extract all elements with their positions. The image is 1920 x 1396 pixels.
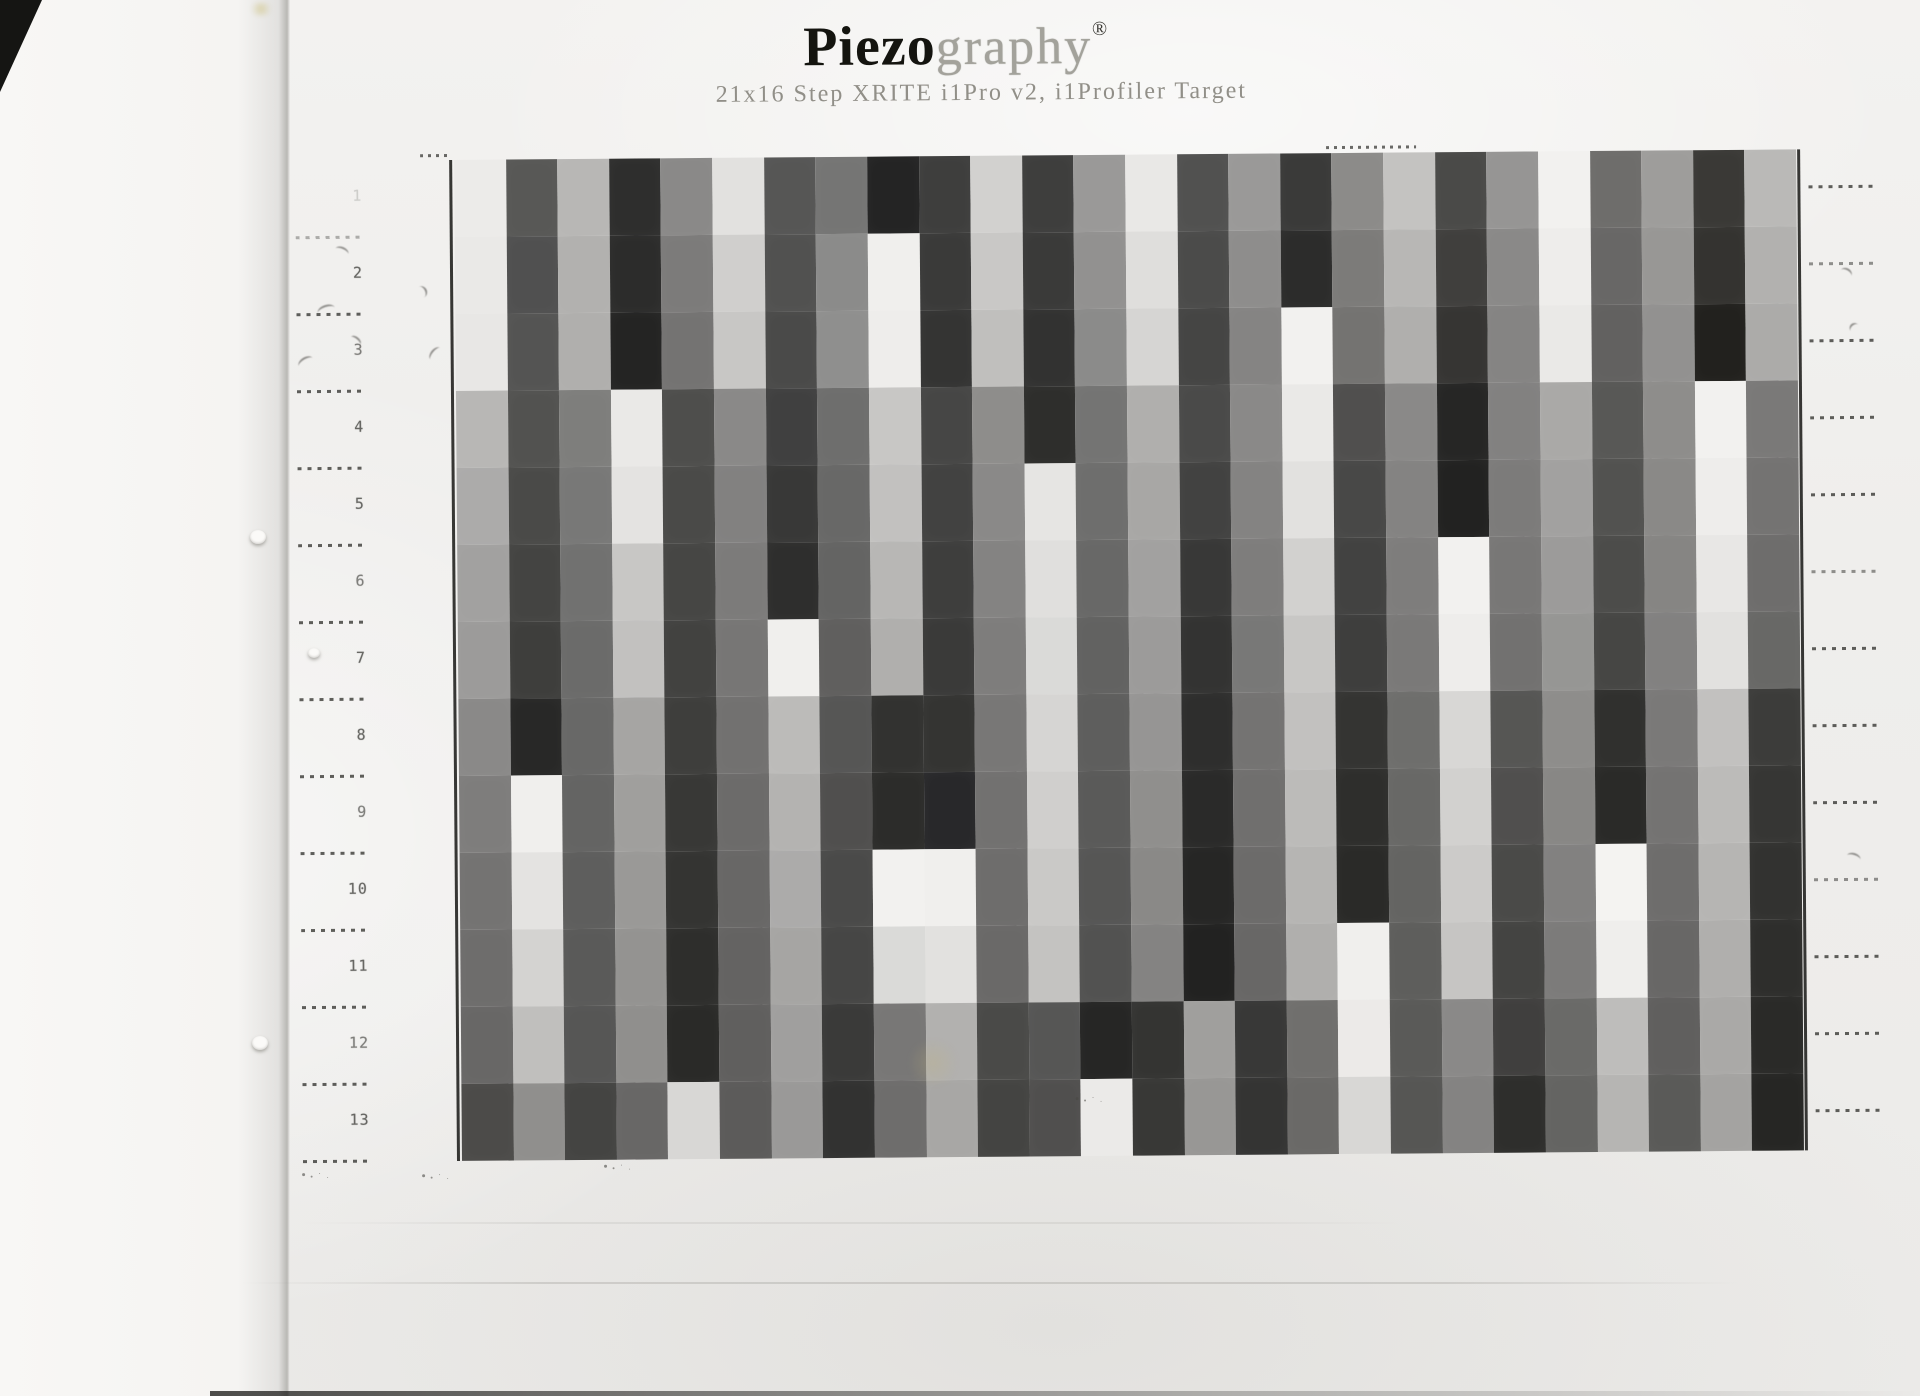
pencil-mark (1838, 266, 1853, 281)
patch (1645, 689, 1697, 766)
patch (1695, 458, 1747, 535)
patch (1285, 769, 1337, 846)
patch (506, 236, 558, 313)
patch (1075, 309, 1127, 386)
patch (508, 390, 560, 467)
ruler-dash-right (1809, 262, 1875, 266)
patch (1492, 921, 1544, 998)
patch (767, 542, 819, 619)
patch (511, 852, 563, 929)
patch (511, 775, 563, 852)
patch (1545, 998, 1597, 1075)
patch (718, 928, 770, 1005)
patch (1744, 149, 1796, 226)
patch (1438, 537, 1490, 614)
pencil-speck (422, 1174, 425, 1177)
patch (1078, 771, 1130, 848)
patch (1590, 228, 1642, 305)
ruler-dash-left (302, 1006, 370, 1010)
patch (1539, 305, 1591, 382)
patch (1280, 153, 1332, 230)
patch (1281, 307, 1333, 384)
patch (1489, 459, 1541, 536)
patch (870, 541, 922, 618)
patch (458, 699, 510, 776)
patch (1390, 999, 1442, 1076)
patch (1332, 230, 1384, 307)
patch (558, 236, 610, 313)
patch (871, 695, 923, 772)
patch (1438, 614, 1490, 691)
patch (821, 927, 873, 1004)
ruler-dash-right (1813, 724, 1879, 728)
patch (1648, 997, 1700, 1074)
patch (922, 618, 974, 695)
paper-crease (300, 1222, 1400, 1224)
patch (921, 464, 973, 541)
patch (719, 1004, 771, 1081)
pencil-mark (427, 345, 443, 362)
patch (1076, 463, 1128, 540)
patch (1542, 690, 1594, 767)
patch (1128, 539, 1180, 616)
patch (664, 543, 716, 620)
patch (868, 233, 920, 310)
patch (771, 1081, 823, 1158)
patch (1591, 382, 1643, 459)
row-label: 5 (331, 495, 365, 513)
ruler-dash-right (1815, 1032, 1881, 1036)
patch (873, 926, 925, 1003)
patch (460, 930, 512, 1007)
patch (869, 387, 921, 464)
patch (662, 312, 714, 389)
patch (1494, 1075, 1546, 1152)
patch (559, 313, 611, 390)
patch (663, 466, 715, 543)
patch (509, 621, 561, 698)
patch (1487, 228, 1539, 305)
scanned-page: Piezography® 21x16 Step XRITE i1Pro v2, … (0, 0, 1920, 1396)
patch (1539, 228, 1591, 305)
patch (1693, 150, 1745, 227)
patch (1029, 1079, 1081, 1156)
patch (1075, 386, 1127, 463)
patch (506, 159, 558, 236)
patch (1073, 155, 1125, 232)
patch (1338, 1000, 1390, 1077)
patch (872, 849, 924, 926)
patch (1389, 845, 1441, 922)
patch (1074, 232, 1126, 309)
patch (1029, 1002, 1081, 1079)
patch (1695, 381, 1747, 458)
patch (1022, 232, 1074, 309)
patch (1233, 692, 1285, 769)
patch (562, 775, 614, 852)
patch (1287, 1077, 1339, 1154)
patch (1130, 770, 1182, 847)
patch (1492, 844, 1544, 921)
ruler-dash-left (298, 467, 366, 471)
row-label: 7 (332, 649, 366, 667)
patch (460, 853, 512, 930)
row-label: 11 (334, 957, 368, 975)
patch (817, 311, 869, 388)
patch (1486, 151, 1538, 228)
scan-stain (905, 1040, 961, 1086)
patch (1287, 1000, 1339, 1077)
patch (454, 160, 506, 237)
pencil-mark (316, 302, 337, 318)
patch (1126, 231, 1178, 308)
patch (1332, 153, 1384, 230)
ruler-dash-right (1811, 570, 1877, 574)
patch (1748, 611, 1800, 688)
page-title: Piezography® (715, 12, 1195, 80)
patch (1387, 691, 1439, 768)
patch (1747, 534, 1799, 611)
patch (1751, 919, 1803, 996)
scan-bottom-edge (210, 1391, 1920, 1396)
patch (715, 543, 767, 620)
ruler-dash-right (1814, 878, 1880, 882)
patch (1126, 308, 1178, 385)
patch (821, 850, 873, 927)
patch (1335, 538, 1387, 615)
patch (1440, 845, 1492, 922)
patch (1697, 689, 1749, 766)
patch (871, 618, 923, 695)
patch (563, 852, 615, 929)
ruler-dash-left (301, 929, 369, 933)
row-label: 9 (333, 803, 367, 821)
patch (611, 389, 663, 466)
patch (1700, 997, 1752, 1074)
patch (1384, 229, 1436, 306)
ruler-dash-right (1814, 955, 1880, 959)
patch (1179, 462, 1231, 539)
target-header: Piezography® 21x16 Step XRITE i1Pro v2, … (715, 12, 1196, 109)
patch (923, 695, 975, 772)
pencil-mark (413, 284, 429, 300)
patch (1231, 538, 1283, 615)
patch (611, 466, 663, 543)
patch (820, 696, 872, 773)
patch (560, 544, 612, 621)
patch (717, 774, 769, 851)
ruler-dash-right (1813, 801, 1879, 805)
patch (1543, 767, 1595, 844)
patch (563, 929, 615, 1006)
patch (507, 313, 559, 390)
ruler-dash-right (1811, 493, 1877, 497)
patch (1080, 1002, 1132, 1079)
patch (455, 237, 507, 314)
ruler-dash-right (1810, 339, 1876, 343)
patch (868, 310, 920, 387)
patch (1282, 461, 1334, 538)
patch (1442, 1076, 1494, 1153)
patch (818, 542, 870, 619)
patch (1752, 1073, 1804, 1150)
patch (512, 1006, 564, 1083)
target-subtitle: 21x16 Step XRITE i1Pro v2, i1Profiler Ta… (716, 78, 1196, 109)
patch (1024, 463, 1076, 540)
patch (769, 850, 821, 927)
patch (1386, 460, 1438, 537)
patch (1285, 846, 1337, 923)
patch (971, 232, 1023, 309)
patch (1182, 847, 1234, 924)
patch (1177, 154, 1229, 231)
patch (1540, 459, 1592, 536)
pencil-mark (1846, 851, 1862, 864)
ruler-dash-left (296, 236, 364, 240)
patch (610, 235, 662, 312)
patch (557, 159, 609, 236)
patch (1694, 304, 1746, 381)
patch (1594, 690, 1646, 767)
row-label: 6 (331, 572, 365, 590)
patch (1644, 458, 1696, 535)
patch (1385, 383, 1437, 460)
patch (614, 774, 666, 851)
patch (1747, 457, 1799, 534)
patch (1699, 920, 1751, 997)
patch (1693, 227, 1745, 304)
patch (455, 314, 507, 391)
patch (976, 925, 1028, 1002)
patch (1435, 152, 1487, 229)
patch (1592, 459, 1644, 536)
patch (457, 545, 509, 622)
patch (1647, 843, 1699, 920)
patch (1338, 923, 1390, 1000)
patch (1077, 540, 1129, 617)
patch (971, 309, 1023, 386)
patch (1595, 844, 1647, 921)
registration-dash (420, 154, 450, 157)
patch (764, 157, 816, 234)
patch (1180, 539, 1232, 616)
patch (561, 621, 613, 698)
patch (1698, 843, 1750, 920)
patch (1180, 616, 1232, 693)
patch (1023, 309, 1075, 386)
patch (713, 312, 765, 389)
patch (1440, 768, 1492, 845)
patch (1183, 1001, 1235, 1078)
patch (1178, 308, 1230, 385)
patch (1543, 844, 1595, 921)
patch (1337, 846, 1389, 923)
patch (1642, 227, 1694, 304)
pencil-mark (1847, 321, 1861, 335)
patch (1645, 612, 1697, 689)
patch (665, 774, 717, 851)
patch (1336, 692, 1388, 769)
patch (609, 158, 661, 235)
ruler-dash-left (300, 775, 368, 779)
ruler-dash-left (297, 390, 365, 394)
patch (975, 771, 1027, 848)
patch (1230, 384, 1282, 461)
patch-grid (454, 149, 1804, 1161)
patch (1028, 925, 1080, 1002)
patch (1027, 848, 1079, 925)
patch (1700, 1074, 1752, 1151)
ruler-dash-right (1812, 647, 1878, 651)
patch (869, 464, 921, 541)
patch (461, 1084, 513, 1161)
patch (1177, 231, 1229, 308)
patch (1538, 151, 1590, 228)
patch (769, 773, 821, 850)
patch (1751, 996, 1803, 1073)
patch (1490, 613, 1542, 690)
patch (612, 543, 664, 620)
patch (1077, 617, 1129, 694)
patch (1236, 1077, 1288, 1154)
patch (1125, 154, 1177, 231)
patch (1335, 615, 1387, 692)
patch (616, 1082, 668, 1159)
patch (926, 1080, 978, 1157)
patch (1235, 1000, 1287, 1077)
patch (819, 619, 871, 696)
patch (1184, 1078, 1236, 1155)
patch (456, 391, 508, 468)
patch (1024, 386, 1076, 463)
patch (925, 926, 977, 1003)
patch (973, 463, 1025, 540)
patch (1284, 615, 1336, 692)
patch (1746, 380, 1798, 457)
patch (1594, 767, 1646, 844)
patch (1648, 1074, 1700, 1151)
patch (1493, 998, 1545, 1075)
ruler-dash-left (303, 1160, 371, 1164)
patch (562, 698, 614, 775)
patch (1542, 613, 1594, 690)
patch (1127, 385, 1179, 462)
row-label: 8 (333, 726, 367, 744)
calibration-target: Piezography® 21x16 Step XRITE i1Pro v2, … (0, 0, 1920, 1396)
patch (1229, 230, 1281, 307)
patch (1491, 690, 1543, 767)
patch (1283, 538, 1335, 615)
patch (508, 467, 560, 544)
patch (874, 1080, 926, 1157)
patch (719, 1081, 771, 1158)
patch (662, 389, 714, 466)
patch (1698, 766, 1750, 843)
row-label: 2 (329, 264, 363, 282)
patch (920, 387, 972, 464)
patch (1749, 688, 1801, 765)
patch (974, 694, 1026, 771)
title-graphy: graphy (935, 18, 1092, 76)
patch (718, 851, 770, 928)
patch (768, 696, 820, 773)
patch (1282, 384, 1334, 461)
paper-crease (240, 1282, 1740, 1284)
patch (667, 1005, 719, 1082)
patch (1488, 382, 1540, 459)
patch (616, 1005, 668, 1082)
patch (1228, 153, 1280, 230)
patch (1390, 1076, 1442, 1153)
patch (1750, 842, 1802, 919)
patch (977, 1002, 1029, 1079)
patch (1387, 614, 1439, 691)
patch (1286, 923, 1338, 1000)
patch (978, 1079, 1030, 1156)
pencil-speck (302, 1173, 305, 1176)
patch (1644, 535, 1696, 612)
registration-dash (1326, 145, 1416, 149)
patch (1489, 536, 1541, 613)
pencil-speck (604, 1165, 607, 1168)
patch (818, 465, 870, 542)
patch (1746, 303, 1798, 380)
patch (823, 1081, 875, 1158)
patch (614, 851, 666, 928)
ruler-dash-right (1808, 185, 1874, 189)
patch (712, 158, 764, 235)
pencil-mark (296, 354, 315, 371)
patch (1540, 382, 1592, 459)
patch (661, 158, 713, 235)
patch (1128, 462, 1180, 539)
patch (1230, 307, 1282, 384)
patch (1597, 1075, 1649, 1152)
patch (1436, 306, 1488, 383)
patch (1386, 537, 1438, 614)
patch (1129, 616, 1181, 693)
ruler-dash-right (1816, 1109, 1882, 1113)
patch (820, 773, 872, 850)
patch (1596, 998, 1648, 1075)
patch (770, 927, 822, 1004)
patch (513, 1083, 565, 1160)
row-label: 4 (330, 418, 364, 436)
patch (1437, 460, 1489, 537)
patch (713, 235, 765, 312)
patch (920, 310, 972, 387)
patch (972, 386, 1024, 463)
patch (1339, 1077, 1391, 1154)
patch (610, 312, 662, 389)
patch (1131, 924, 1183, 1001)
patch (1541, 536, 1593, 613)
patch (923, 772, 975, 849)
patch (459, 776, 511, 853)
patch (816, 234, 868, 311)
patch (1389, 922, 1441, 999)
patch (1026, 694, 1078, 771)
patch (970, 155, 1022, 232)
patch (457, 468, 509, 545)
patch (512, 929, 564, 1006)
patch (976, 848, 1028, 925)
patch (1749, 765, 1801, 842)
patch (815, 157, 867, 234)
patch (613, 620, 665, 697)
patch (560, 467, 612, 544)
patch (1491, 767, 1543, 844)
